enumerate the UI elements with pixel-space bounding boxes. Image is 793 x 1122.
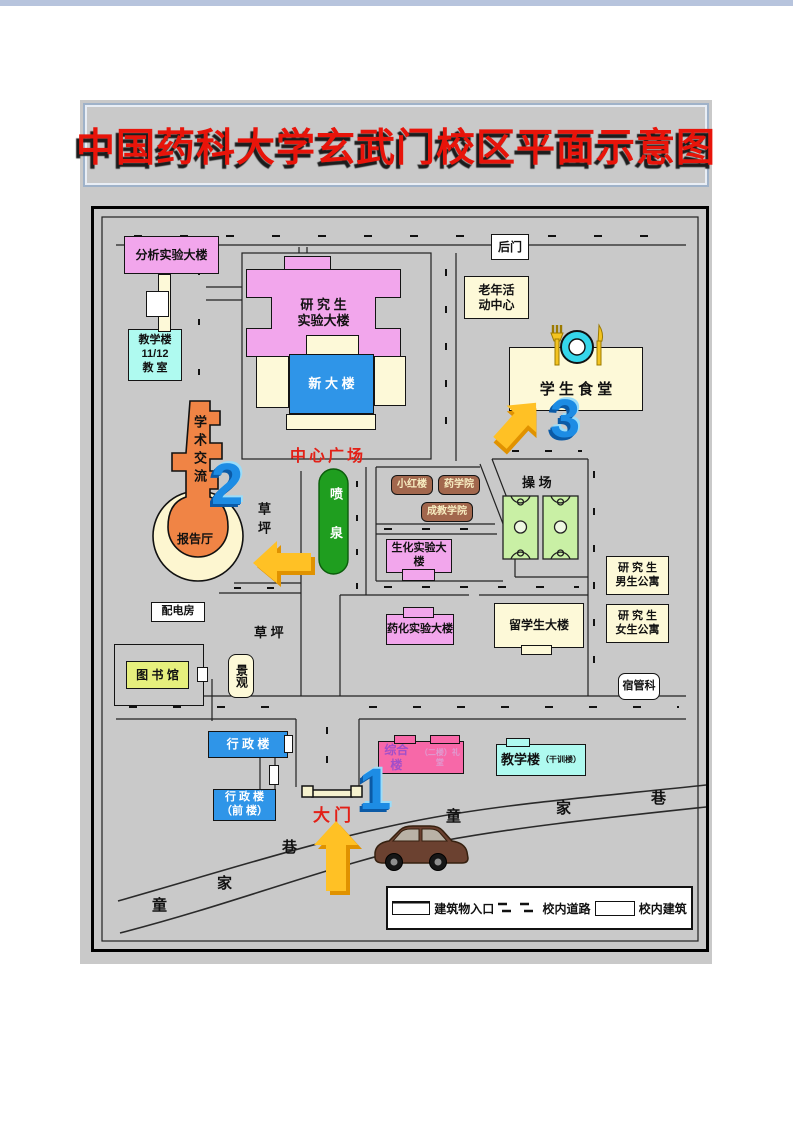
map-sheet: 中国药科大学玄武门校区平面示意图 (80, 100, 712, 964)
route-marker-1: 1 (359, 761, 391, 819)
back-gate: 后门 (491, 234, 529, 260)
lawn-upper-label: 草坪 (254, 502, 273, 540)
page-title: 中国药科大学玄武门校区平面示意图 (76, 117, 716, 173)
map-frame: 分析实验大楼 教学楼 11/12 教 室 研 究 生 实验大楼 新 大 楼 后门… (91, 206, 709, 952)
comprehensive-entrance-1 (394, 735, 416, 744)
basketball-courts (503, 496, 578, 559)
main-gate-label: 大门 (313, 801, 355, 826)
pharmchem-lab-entrance (403, 607, 434, 618)
building-pharmacy-school: 药学院 (438, 475, 480, 495)
legend-building-icon (595, 901, 635, 916)
route-marker-2: 2 (211, 456, 243, 514)
new-building-south-annex (286, 414, 376, 430)
building-admin: 行 政 楼 (208, 731, 288, 758)
new-building-east-wing (374, 356, 406, 406)
grad-lab-notch-left (246, 297, 272, 329)
legend: 建筑物入口 校内道路 校内建筑 (386, 886, 693, 930)
building-analysis-lab: 分析实验大楼 (124, 236, 219, 274)
building-grad-male-dorm: 研 究 生 男生公寓 (606, 556, 669, 595)
new-building-link (306, 335, 359, 355)
page-top-strip (0, 0, 793, 6)
legend-entrance-icon (392, 901, 430, 915)
building-new-main: 新 大 楼 (289, 354, 374, 414)
route-marker-3: 3 (550, 392, 580, 446)
playground-label: 操 场 (522, 472, 552, 491)
biochem-lab-entrance (402, 569, 435, 581)
fountain-label: 喷泉 (326, 487, 345, 565)
lecture-hall-label: 报告厅 (177, 530, 213, 547)
legend-road-label: 校内道路 (543, 900, 591, 917)
building-teaching: 教学楼 （干训楼） (496, 744, 586, 776)
building-senior-center: 老年活 动中心 (464, 276, 529, 319)
library-entrance (197, 667, 208, 682)
building-little-red: 小红楼 (391, 475, 433, 495)
dining-icon (541, 323, 611, 369)
title-banner: 中国药科大学玄武门校区平面示意图 (83, 103, 709, 187)
admin-link-entrance (269, 765, 279, 785)
legend-building-label: 校内建筑 (639, 900, 687, 917)
teaching-entrance (506, 738, 530, 747)
building-adult-education: 成教学院 (421, 502, 473, 522)
plate-icon (561, 331, 593, 363)
analysis-lab-entrance (146, 291, 169, 317)
grad-lab-entrance (284, 256, 331, 270)
comprehensive-entrance-2 (430, 735, 460, 744)
building-intl-students: 留学生大楼 (494, 603, 584, 648)
landscape-feature: 景观 (228, 654, 254, 698)
legend-entrance-label: 建筑物入口 (434, 900, 494, 917)
building-admin-front: 行 政 楼 （前 楼） (213, 789, 276, 821)
lawn-lower-label: 草 坪 (254, 622, 284, 641)
building-classroom-11-12: 教学楼 11/12 教 室 (128, 329, 182, 381)
knife-icon (597, 325, 603, 365)
grad-lab-notch-right (375, 297, 401, 329)
academic-exchange-label: 学术交流 (190, 415, 209, 487)
admin-entrance (284, 735, 293, 753)
building-library: 图 书 馆 (126, 661, 189, 689)
building-pharmchem-lab: 药化实验大楼 (386, 614, 454, 645)
intl-students-entrance (521, 645, 552, 655)
building-biochem-lab: 生化实验大楼 (386, 539, 452, 573)
central-plaza-label: 中心广场 (290, 442, 366, 466)
building-grad-female-dorm: 研 究 生 女生公寓 (606, 604, 669, 643)
legend-road-icon (498, 902, 538, 914)
dorm-management-office: 宿管科 (618, 673, 660, 700)
new-building-west-wing (256, 356, 289, 408)
power-distribution-room: 配电房 (151, 602, 205, 622)
